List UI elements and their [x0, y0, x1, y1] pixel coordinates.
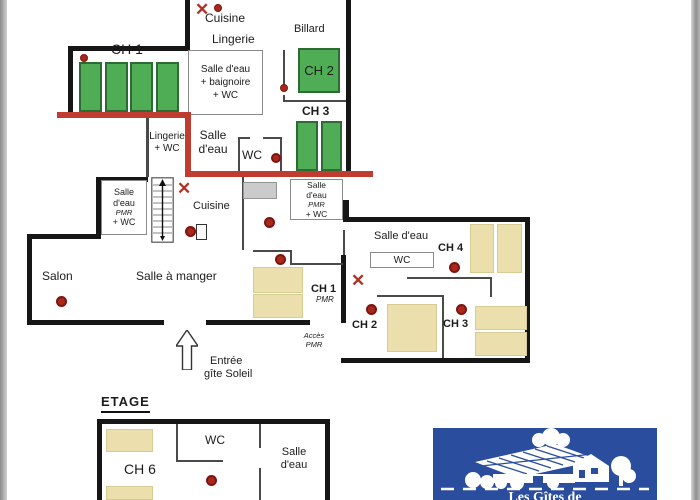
bed-beige [475, 306, 527, 330]
x-mark-icon: ✕ [351, 272, 365, 289]
wall [290, 263, 343, 265]
wall [185, 0, 190, 50]
label-cuisine-ground: Cuisine [193, 200, 230, 213]
bed-beige [106, 486, 153, 500]
room-label-wc: WC [394, 255, 411, 266]
room-label: + baignoire [201, 76, 251, 89]
detector-dot-icon [206, 475, 217, 486]
bed-green [156, 62, 179, 112]
label-ch3-wing: CH 3 [443, 318, 468, 331]
wall [263, 137, 280, 139]
wall [97, 419, 102, 500]
room-label: + WC [213, 89, 238, 102]
x-mark-icon: ✕ [195, 1, 209, 18]
wall [407, 277, 492, 279]
wall [68, 46, 73, 114]
bed-green [321, 121, 342, 171]
wall [490, 277, 492, 297]
room-label-ch2: CH 2 [304, 63, 334, 78]
label-salle-eau-etage: Salle d'eau [274, 446, 314, 471]
label-cuisine-upper: Cuisine [205, 12, 245, 26]
wall [259, 468, 261, 500]
label-wc-upper: WC [242, 149, 262, 163]
label-gite-soleil: gîte Soleil [204, 368, 252, 381]
wall [283, 100, 346, 102]
right-edge-strip [691, 0, 700, 500]
label-ch1-ground: CH 1 [311, 283, 336, 296]
wall [341, 255, 346, 323]
left-edge-strip [0, 0, 7, 500]
wall [97, 419, 330, 424]
wall [176, 460, 223, 462]
room-salle-eau-baignoire: Salle d'eau + baignoire + WC [188, 50, 263, 115]
detector-dot-icon [214, 4, 222, 12]
detector-dot-icon [366, 304, 377, 315]
detector-dot-icon [449, 262, 460, 273]
wall [377, 295, 444, 297]
bed-beige [106, 429, 153, 452]
wall [259, 424, 261, 448]
detector-dot-icon [275, 254, 286, 265]
label-ch1-pmr: PMR [316, 295, 334, 304]
bed-green [105, 62, 128, 112]
wall [346, 0, 351, 177]
floor-plan-document: Salle d'eau + baignoire + WC CH 2 Cuisin… [0, 0, 700, 500]
wall [253, 250, 291, 252]
detector-dot-icon [264, 217, 275, 228]
bed-beige [253, 294, 303, 318]
threshold-block [243, 182, 277, 199]
label-billard: Billard [294, 23, 325, 36]
detector-dot-icon [456, 304, 467, 315]
stairs-icon [151, 177, 174, 243]
room-salle-eau-pmr-left: Salle d'eau PMR + WC [101, 180, 147, 235]
label-ch2-wing: CH 2 [352, 319, 377, 332]
kitchen-fixture [196, 224, 207, 240]
bed-beige [387, 304, 437, 352]
detector-dot-icon [56, 296, 67, 307]
bed-beige [470, 224, 494, 273]
detector-dot-icon [280, 84, 288, 92]
label-salle-eau-wing: Salle d'eau [374, 230, 428, 243]
bed-green [296, 121, 318, 171]
label-wc-etage: WC [205, 434, 225, 448]
wall [343, 230, 345, 255]
detector-dot-icon [185, 226, 196, 237]
label-lingerie-upper: Lingerie [212, 33, 255, 47]
entrance-arrow-icon [176, 330, 198, 370]
label-salle-a-manger: Salle à manger [136, 270, 217, 284]
gites-logo: Les Gîtes de [433, 428, 657, 500]
gite-separation-line [185, 171, 373, 177]
bed-green-ch2: CH 2 [298, 48, 340, 93]
wall [346, 217, 530, 222]
etage-heading: ETAGE [101, 395, 150, 413]
wall [341, 358, 530, 363]
label-entree: Entrée [210, 355, 242, 368]
x-mark-icon: ✕ [177, 180, 191, 197]
wall [238, 137, 250, 139]
gite-separation-line [57, 112, 190, 118]
detector-dot-icon [271, 153, 281, 163]
wall [176, 424, 178, 462]
bed-green [79, 62, 102, 112]
wall [27, 320, 164, 325]
room-label: Salle d'eau [201, 63, 250, 76]
bed-beige [497, 224, 522, 273]
logo-caption: Les Gîtes de [508, 490, 581, 500]
room-salle-eau-pmr-right: Salle d'eau PMR + WC [290, 179, 343, 220]
label-ch4-wing: CH 4 [438, 242, 463, 255]
label-lingerie-wc: Lingerie + WC [146, 131, 188, 154]
bed-green [130, 62, 153, 112]
label-ch3-upper: CH 3 [302, 105, 329, 119]
label-salle-eau-mid: Salle d'eau [193, 129, 233, 157]
bed-beige [475, 332, 527, 356]
wall [27, 234, 32, 325]
wall [206, 320, 310, 325]
label-ch1-upper: CH 1 [111, 41, 143, 57]
bed-beige [253, 267, 303, 293]
label-ch6: CH 6 [124, 461, 156, 477]
label-salon: Salon [42, 270, 73, 284]
wall [325, 419, 330, 500]
room-wc-wing: WC [370, 252, 434, 268]
detector-dot-icon [80, 54, 88, 62]
wall [27, 234, 99, 239]
label-acces-pmr: Accès PMR [297, 332, 331, 349]
wall [238, 137, 240, 172]
wall [283, 50, 285, 88]
